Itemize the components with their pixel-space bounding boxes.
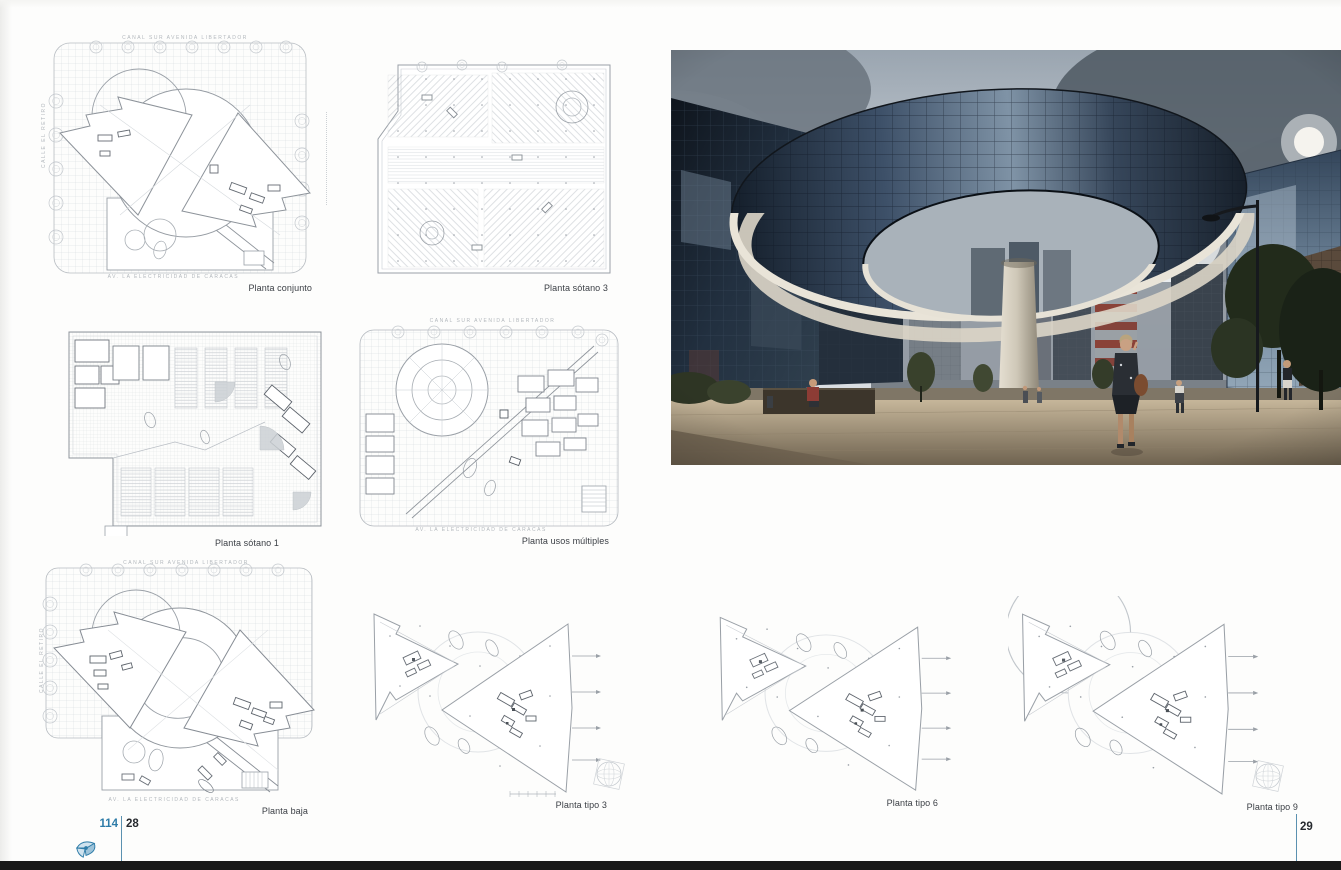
plan-caption: Planta usos múltiples [522,536,609,546]
floor-plan-drawing [1008,596,1304,800]
street-label-left: CALLE EL RETIRO [39,627,45,693]
architectural-rendering-photo [671,50,1341,465]
floor-plan-planta-tipo-3: Planta tipo 3 [360,596,645,810]
book-spread: CANAL SUR AVENIDA LIBERTADOR CALLE EL RE… [0,0,1341,870]
rendering-image [671,50,1341,465]
plan-caption: Planta conjunto [248,283,312,293]
floor-plan-drawing [706,600,996,796]
floor-plan-planta-usos-multiples: CANAL SUR AVENIDA LIBERTADOR AV. LA ELEC… [350,318,635,546]
left-page-number: 28 [126,818,139,830]
plan-caption: Planta sótano 1 [215,538,279,548]
plan-caption: Planta baja [262,806,308,816]
plan-caption: Planta tipo 3 [556,800,607,810]
street-label-top: CANAL SUR AVENIDA LIBERTADOR [430,318,556,324]
geodesic-sphere-sketch-icon [1253,761,1284,792]
floor-plan-drawing [350,318,635,534]
street-label-top: CANAL SUR AVENIDA LIBERTADOR [122,35,248,41]
floor-plan-drawing [362,55,624,281]
page-top-shadow [0,0,1341,8]
street-label-bottom: AV. LA ELECTRICIDAD DE CARACAS [415,527,546,533]
plan-caption: Planta sótano 3 [544,283,608,293]
floor-plan-drawing [40,35,330,281]
floor-plan-planta-conjunto: CANAL SUR AVENIDA LIBERTADOR CALLE EL RE… [40,35,330,293]
street-label-left: CALLE EL RETIRO [41,102,47,168]
floor-plan-planta-tipo-6: Planta tipo 6 [706,600,996,808]
geodesic-sphere-sketch-icon [594,759,625,790]
publisher-logo-icon [73,836,99,860]
street-label-bottom: AV. LA ELECTRICIDAD DE CARACAS [108,797,239,803]
street-label-top: CANAL SUR AVENIDA LIBERTADOR [123,560,249,566]
page-edge-shadow [0,0,12,861]
bottom-bar [0,861,1341,870]
right-page-number: 29 [1300,821,1313,833]
street-label-right-illegible [326,112,327,205]
floor-plan-planta-sotano-1: Planta sótano 1 [55,322,335,548]
street-label-bottom: AV. LA ELECTRICIDAD DE CARACAS [108,274,239,280]
floor-plan-planta-tipo-9: Planta tipo 9 [1008,596,1304,812]
left-folio-rule [121,816,122,861]
floor-plan-planta-sotano-3: Planta sótano 3 [362,55,624,293]
floor-plan-drawing [360,596,645,798]
floor-plan-planta-baja: CANAL SUR AVENIDA LIBERTADOR CALLE EL RE… [38,560,334,816]
floor-plan-drawing [38,560,334,804]
floor-plan-drawing [55,322,335,536]
book-folio-number: 114 [72,818,118,830]
plan-caption: Planta tipo 9 [1247,802,1298,812]
photo-vignette [671,50,1341,465]
right-folio-rule [1296,814,1297,861]
plan-caption: Planta tipo 6 [887,798,938,808]
